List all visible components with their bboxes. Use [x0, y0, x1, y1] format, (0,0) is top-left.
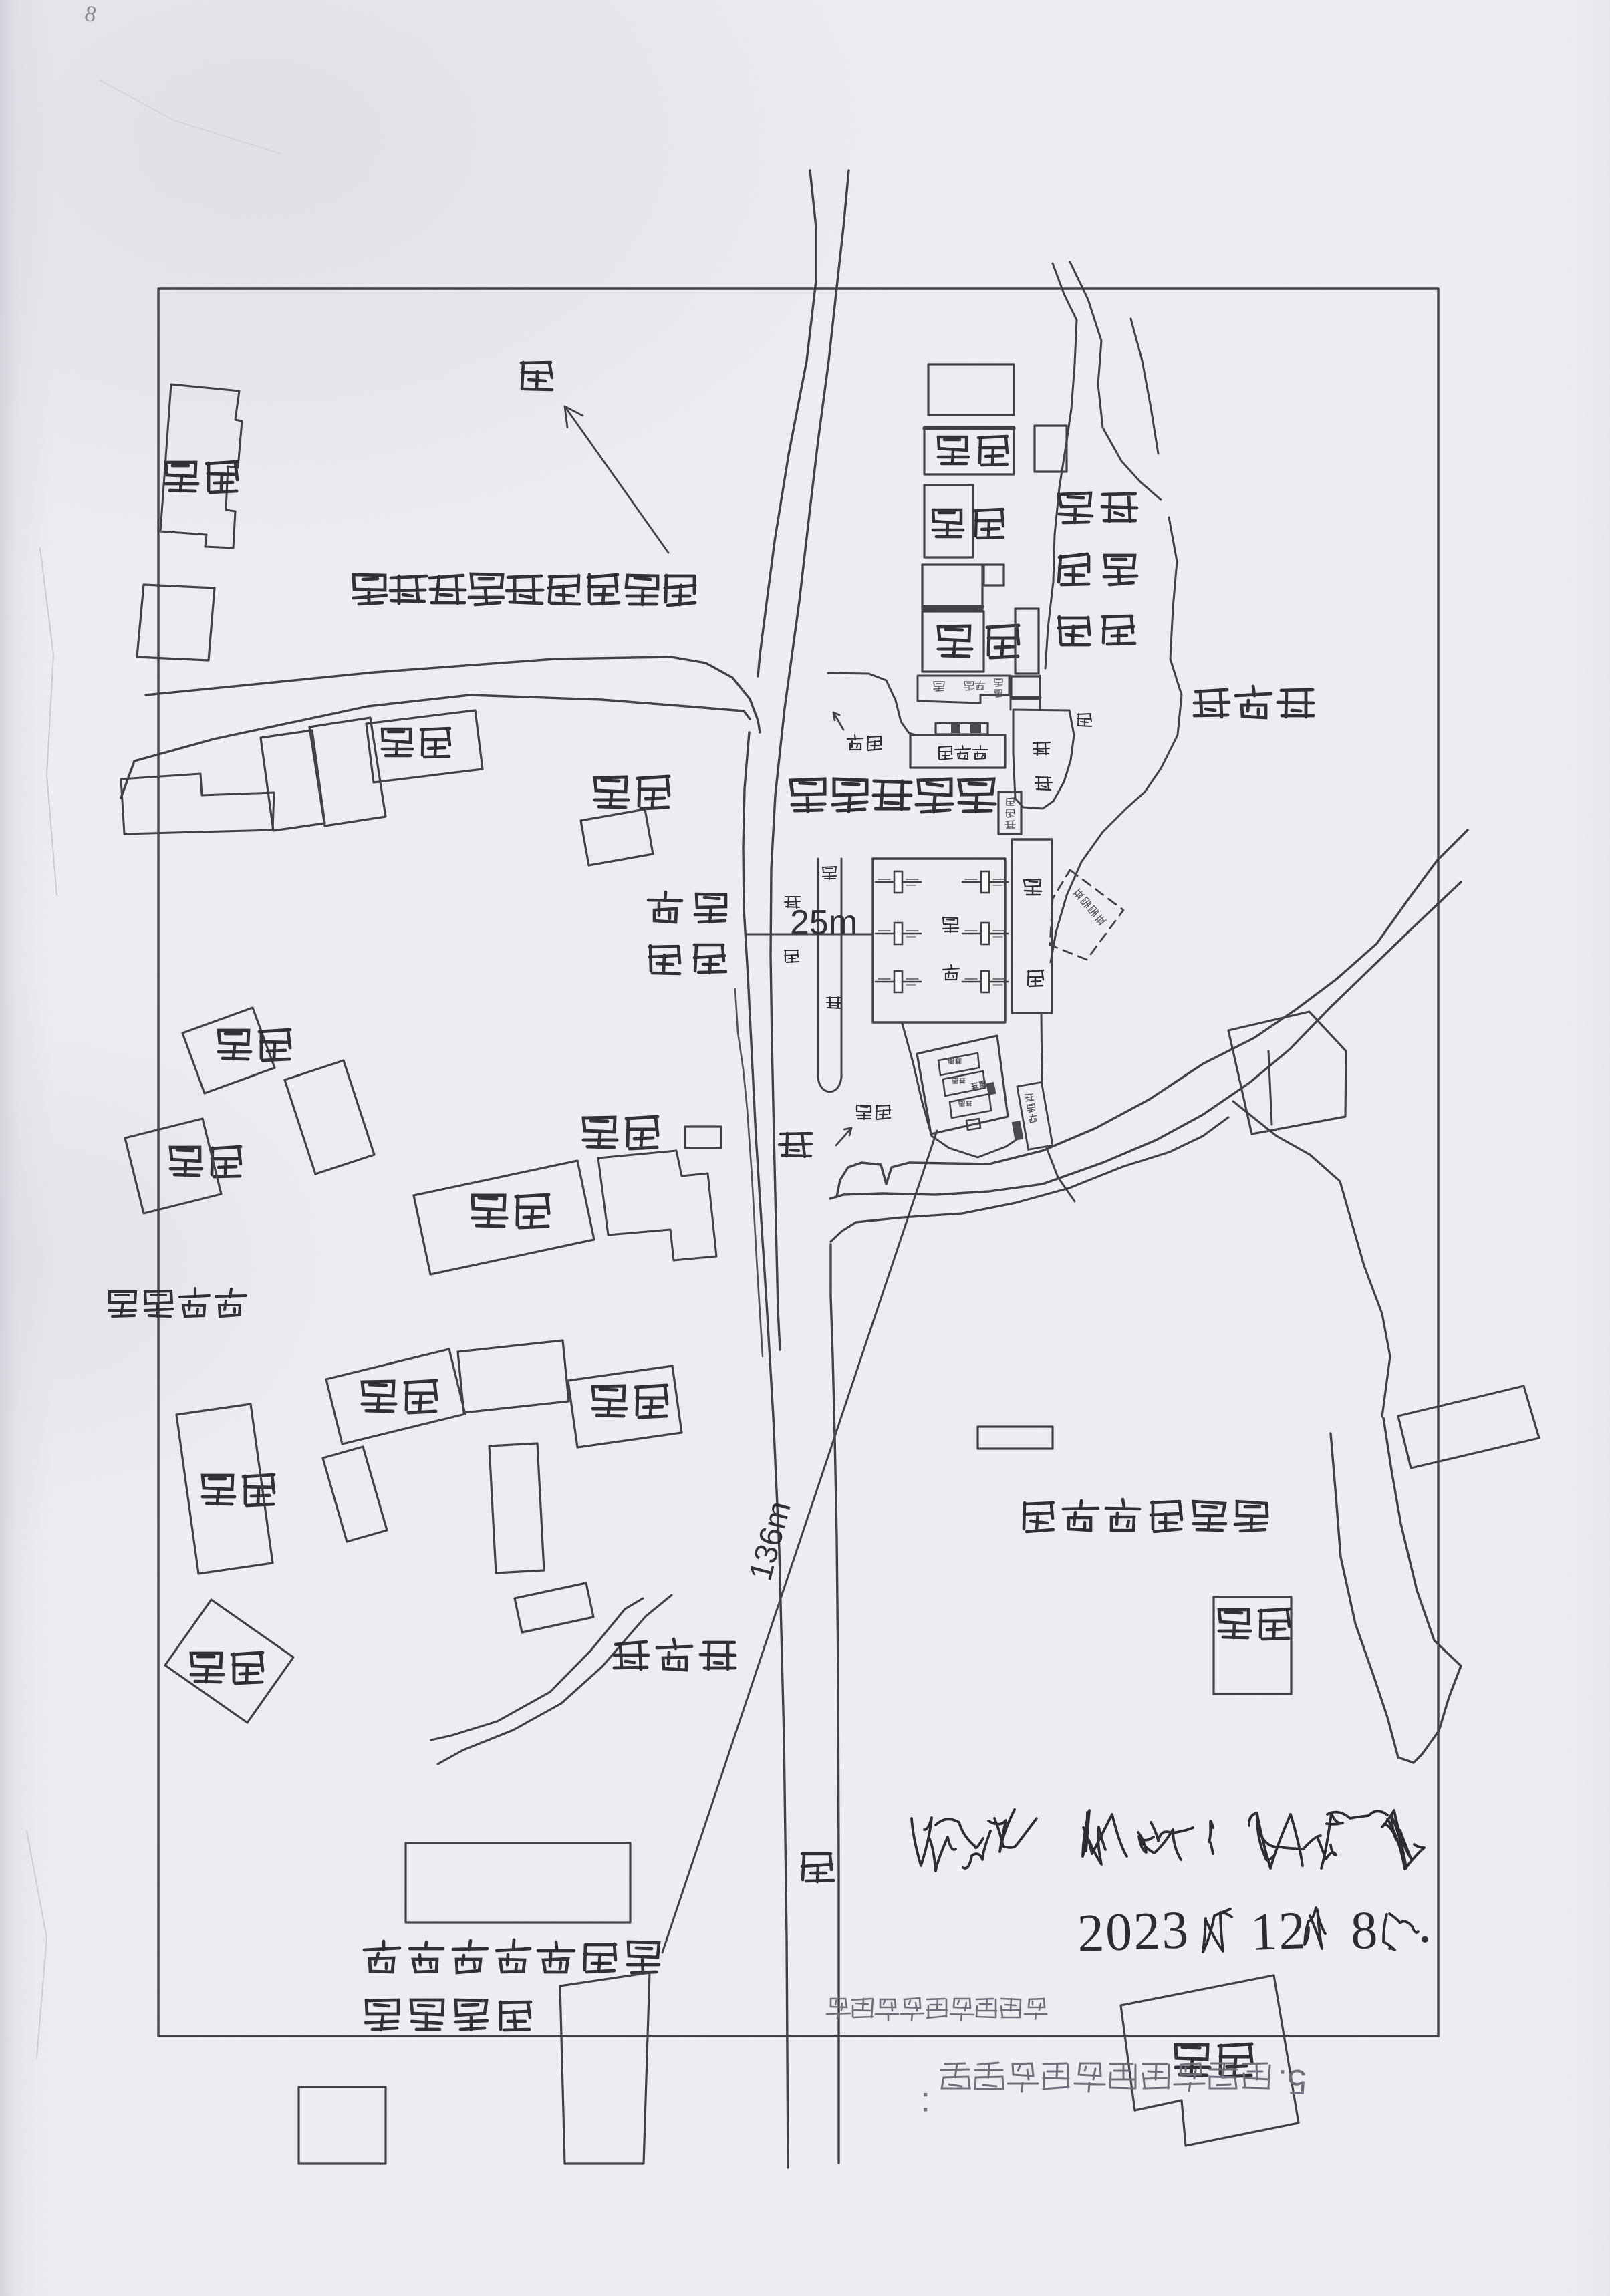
- svg-text::: :: [921, 2085, 930, 2124]
- svg-text:12: 12: [1250, 1901, 1308, 1962]
- svg-text:.: .: [1418, 1895, 1432, 1954]
- svg-text:2023: 2023: [1077, 1900, 1191, 1963]
- svg-text:8: 8: [1350, 1901, 1379, 1961]
- svg-text:25m: 25m: [790, 903, 857, 942]
- svg-text:5.: 5.: [1278, 2062, 1307, 2101]
